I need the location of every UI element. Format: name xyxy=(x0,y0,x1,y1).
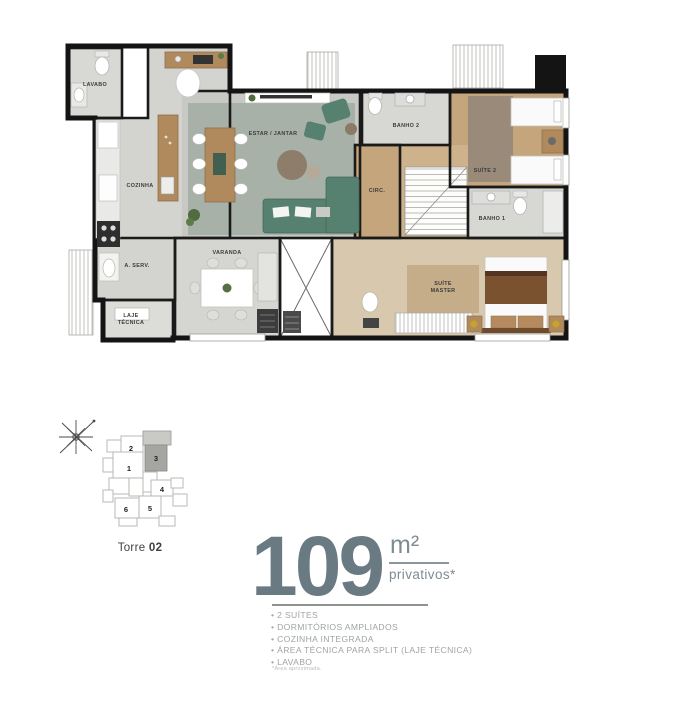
label-suite-master-1: SUÍTE xyxy=(434,279,452,287)
label-varanda: VARANDA xyxy=(212,250,241,256)
unit-number-6: 6 xyxy=(124,505,128,514)
area-value: 109 xyxy=(251,524,382,608)
area-unit-block: m² privativos* xyxy=(389,533,456,582)
tower-label: Torre xyxy=(118,542,146,554)
feature-item: ÁREA TÉCNICA PARA SPLIT (LAJE TÉCNICA) xyxy=(271,645,472,657)
label-banho1: BANHO 1 xyxy=(479,216,506,222)
tower-caption: Torre 02 xyxy=(75,542,205,554)
label-estar-jantar: ESTAR / JANTAR xyxy=(249,131,298,137)
label-circ: CIRC. xyxy=(369,188,386,194)
label-laje-2: TÉCNICA xyxy=(118,318,144,326)
label-area-servico: A. SERV. xyxy=(124,263,149,269)
area-unit: m² xyxy=(389,533,449,564)
floor-plan-page: LAVABO COZINHA ESTAR / JANTAR VARANDA A.… xyxy=(0,0,674,720)
unit-number-3: 3 xyxy=(154,454,158,463)
unit-number-1: 1 xyxy=(127,464,131,473)
staircase xyxy=(405,167,467,235)
divider-line xyxy=(272,604,428,606)
key-plan-highlighted-unit xyxy=(143,431,171,471)
feature-item: DORMITÓRIOS AMPLIADOS xyxy=(271,622,472,634)
tower-number: 02 xyxy=(149,542,162,554)
apartment-floor-plan: LAVABO COZINHA ESTAR / JANTAR VARANDA A.… xyxy=(55,25,595,355)
label-banho2: BANHO 2 xyxy=(393,123,420,129)
label-lavabo: LAVABO xyxy=(83,82,107,88)
footnote: *Área aproximada. xyxy=(272,666,322,672)
unit-number-2: 2 xyxy=(129,444,133,453)
area-qualifier: privativos* xyxy=(389,567,456,582)
label-cozinha: COZINHA xyxy=(126,183,153,189)
key-plan: 2 3 1 4 5 6 xyxy=(95,428,205,533)
feature-list: 2 SUÍTES DORMITÓRIOS AMPLIADOS COZINHA I… xyxy=(271,610,472,669)
feature-item: 2 SUÍTES xyxy=(271,610,472,622)
unit-number-5: 5 xyxy=(148,504,152,513)
label-suite2: SUÍTE 2 xyxy=(474,166,497,174)
feature-item: COZINHA INTEGRADA xyxy=(271,634,472,646)
label-suite-master-2: MASTER xyxy=(431,288,456,294)
label-laje-1: LAJE xyxy=(123,313,138,319)
structural-block xyxy=(535,55,566,90)
